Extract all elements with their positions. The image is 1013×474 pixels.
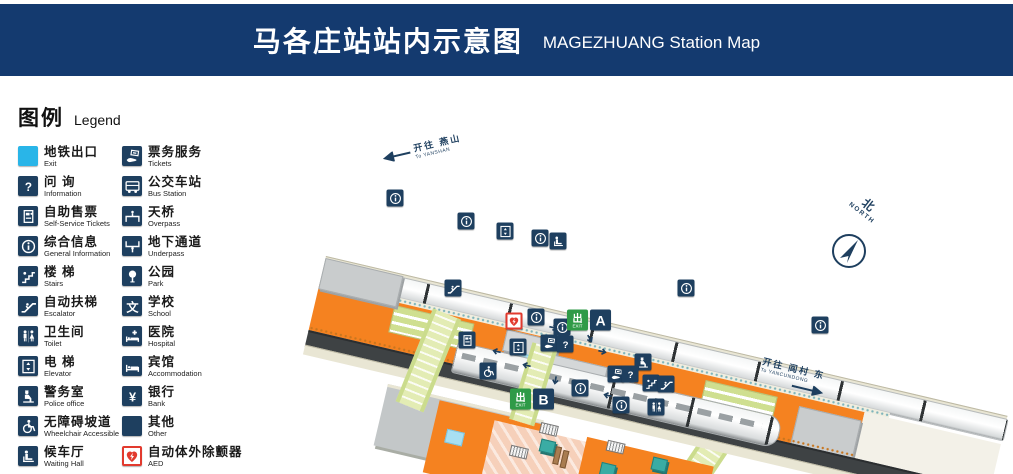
compass: 北 NORTH <box>826 196 900 280</box>
map-icon-tickets <box>541 335 558 352</box>
svg-text:?: ? <box>562 340 568 351</box>
exit-letter-A: A <box>590 310 611 331</box>
map-icon-self-service <box>459 332 476 349</box>
exit-sign-icon: 出 EXIT <box>567 310 588 331</box>
map-icon-wheelchair <box>480 363 497 380</box>
exit-B-sign: 出 EXITB <box>510 389 554 410</box>
map-icon-info <box>678 280 695 297</box>
map-icon-question: ? <box>622 366 639 383</box>
svg-text:?: ? <box>627 370 633 381</box>
north-arrow-icon <box>832 234 866 268</box>
map-icon-escalator <box>658 376 675 393</box>
exit-sign-icon: 出 EXIT <box>510 389 531 410</box>
map-icon-elevator <box>510 339 527 356</box>
left-arrow-icon <box>380 147 411 163</box>
map-icon-info <box>613 397 630 414</box>
map-icon-info <box>458 213 475 230</box>
map-icon-toilet <box>648 399 665 416</box>
station-diagram: ?? 出 EXITA 出 EXITB 开往 燕山 To YANSHAN 开往 阎… <box>0 90 1013 474</box>
map-icon-waiting <box>550 233 567 250</box>
station-map-page: 马各庄站站内示意图 MAGEZHUANG Station Map 图例 Lege… <box>0 0 1013 474</box>
map-icon-question: ? <box>557 336 574 353</box>
floor-arrow-icon <box>548 372 564 388</box>
svg-text:EXIT: EXIT <box>515 403 525 408</box>
map-icon-info <box>572 380 589 397</box>
map-icon-info <box>387 190 404 207</box>
map-icon-info <box>528 309 545 326</box>
map-icon-info <box>532 230 549 247</box>
map-icon-elevator <box>497 223 514 240</box>
exit-A-sign: 出 EXITA <box>567 310 611 331</box>
map-icon-info <box>812 317 829 334</box>
ticket-vending-machine <box>599 462 617 474</box>
map-icon-escalator <box>445 280 462 297</box>
exit-letter-B: B <box>533 389 554 410</box>
svg-text:EXIT: EXIT <box>572 324 582 329</box>
map-icon-aed <box>506 313 523 330</box>
